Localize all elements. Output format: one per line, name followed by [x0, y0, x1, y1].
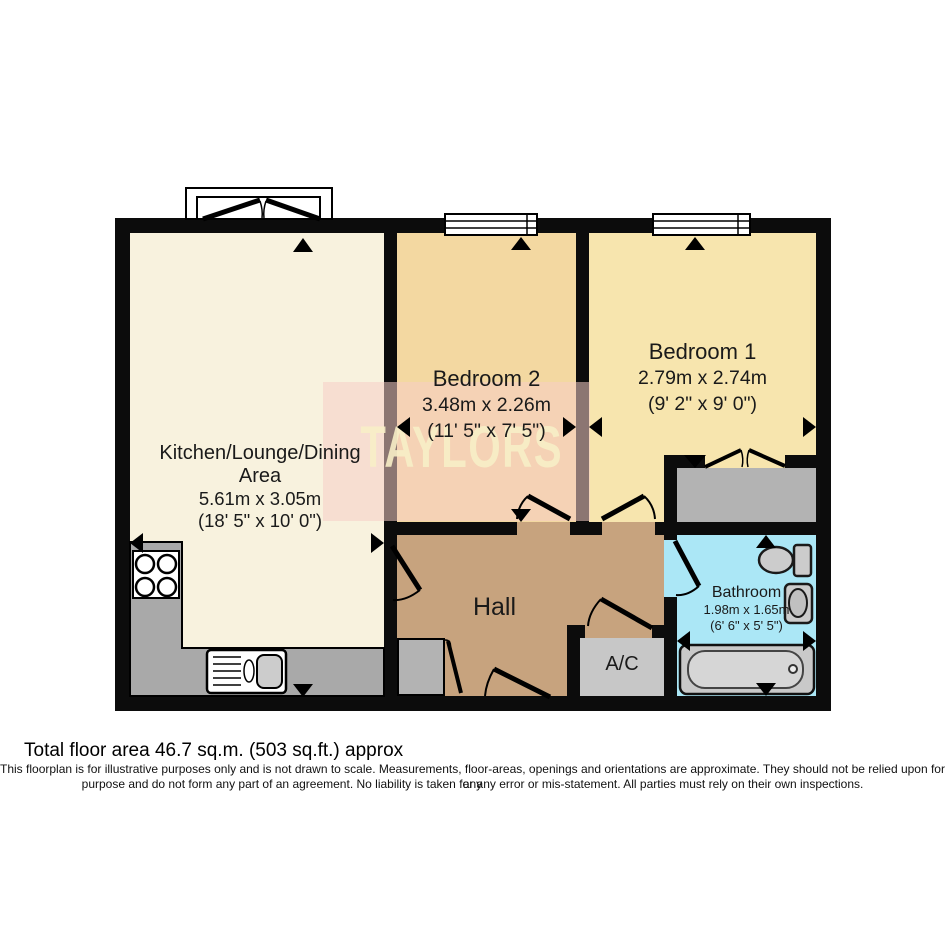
bedroom2-label: Bedroom 2 3.48m x 2.26m (11' 5" x 7' 5"): [397, 365, 576, 444]
wall-wardrobe-stub-left: [664, 455, 705, 468]
bathroom-dims-imperial: (6' 6" x 5' 5"): [677, 618, 816, 634]
wall-hall-top-mid: [570, 522, 602, 535]
wall-hall-top-left: [384, 522, 517, 535]
wall-wardrobe-stub-right: [785, 455, 816, 468]
bathroom-name: Bathroom: [677, 583, 816, 602]
wall-wardrobe-bathroom: [664, 522, 816, 535]
bedroom1-dims-metric: 2.79m x 2.74m: [589, 365, 816, 391]
wall-outer-bottom: [115, 696, 831, 711]
airing-cupboard-label: A/C: [580, 653, 664, 676]
floorplan: TAYLORS: [0, 0, 945, 945]
total-floor-area-text: Total floor area 46.7 sq.m. (503 sq.ft.)…: [24, 740, 403, 762]
wall-outer-right: [816, 218, 831, 711]
bedroom1-wardrobe-floor: [677, 468, 816, 522]
bedroom1-name: Bedroom 1: [589, 338, 816, 365]
wall-outer-top: [115, 218, 831, 233]
kitchen-dims-imperial: (18' 5" x 10' 0"): [140, 510, 380, 532]
kitchen-name: Kitchen/Lounge/Dining Area: [140, 442, 380, 488]
hall-storage-cupboard: [397, 638, 445, 696]
bedroom2-dims-metric: 3.48m x 2.26m: [397, 392, 576, 418]
bedroom1-dims-imperial: (9' 2" x 9' 0"): [589, 391, 816, 417]
wall-ac-top-left: [567, 625, 585, 638]
wall-hall-bathroom-lower: [664, 597, 677, 696]
bathroom-label: Bathroom 1.98m x 1.65m (6' 6" x 5' 5"): [677, 583, 816, 633]
hall-label: Hall: [397, 593, 592, 622]
wall-outer-left: [115, 218, 130, 711]
bathroom-door-opening: [664, 540, 677, 597]
bedroom2-name: Bedroom 2: [397, 365, 576, 392]
bedroom2-dims-imperial: (11' 5" x 7' 5"): [397, 418, 576, 444]
kitchen-dims-metric: 5.61m x 3.05m: [140, 488, 380, 510]
bedroom1-door-opening: [602, 522, 655, 535]
wall-hall-bathroom-upper: [664, 535, 677, 540]
bedroom1-label: Bedroom 1 2.79m x 2.74m (9' 2" x 9' 0"): [589, 338, 816, 417]
french-doors-icon: [203, 200, 320, 219]
disclaimer-line2: purpose and do not form any part of an a…: [0, 777, 945, 792]
bedroom2-door-opening: [517, 522, 570, 535]
bathroom-dims-metric: 1.98m x 1.65m: [677, 602, 816, 618]
kitchen-label: Kitchen/Lounge/Dining Area 5.61m x 3.05m…: [140, 442, 380, 532]
wall-ac-top-right: [652, 625, 664, 638]
juliet-balcony: [186, 188, 332, 219]
